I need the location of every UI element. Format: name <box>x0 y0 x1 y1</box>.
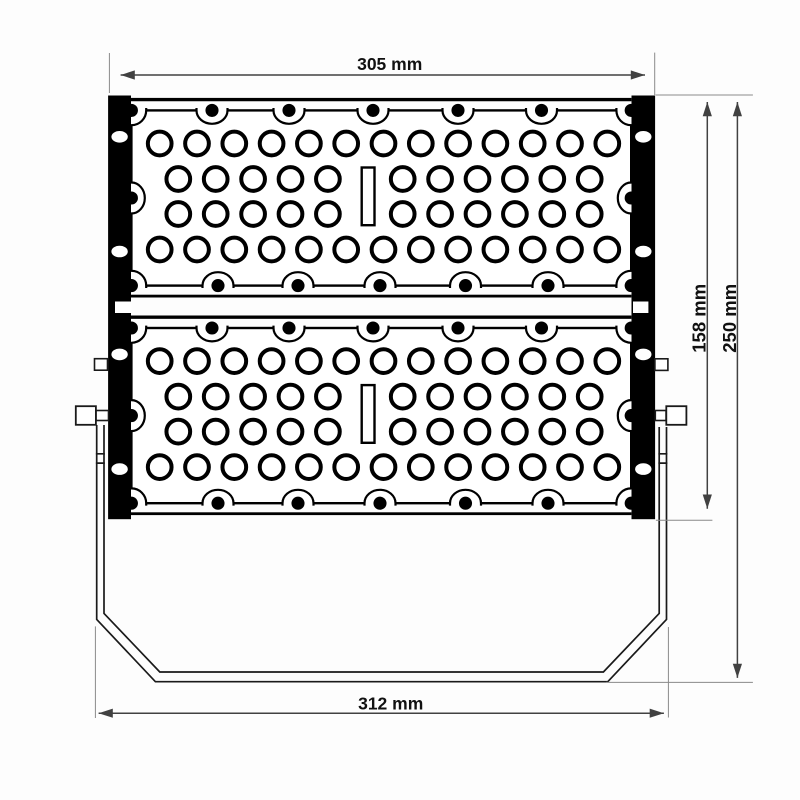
svg-text:312 mm: 312 mm <box>358 693 423 713</box>
svg-text:305 mm: 305 mm <box>357 54 422 74</box>
svg-text:250 mm: 250 mm <box>719 284 740 353</box>
svg-text:158 mm: 158 mm <box>688 284 709 353</box>
